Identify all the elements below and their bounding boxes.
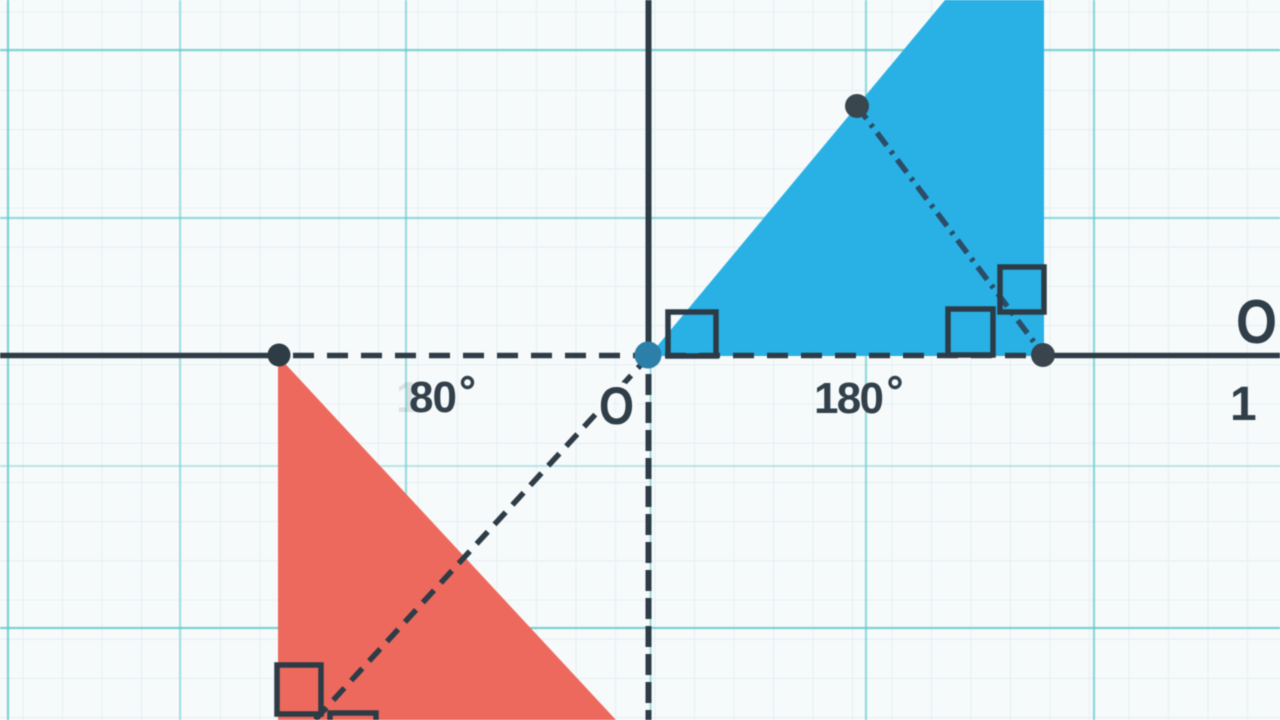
svg-text:O: O <box>599 377 634 436</box>
svg-text:O: O <box>1236 288 1277 357</box>
svg-text:1: 1 <box>1230 378 1257 431</box>
svg-text:180: 180 <box>814 374 884 423</box>
svg-text:80: 80 <box>409 373 457 422</box>
